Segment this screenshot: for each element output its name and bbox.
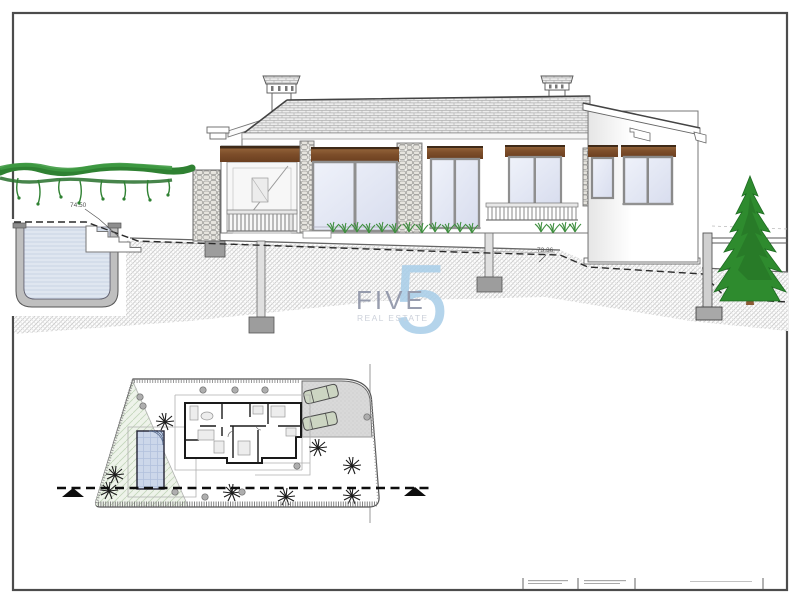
small-window	[592, 158, 613, 198]
conifer-tree-icon	[714, 176, 786, 305]
glass-door	[429, 159, 481, 228]
porch	[227, 162, 297, 233]
garden-wall-stone	[193, 170, 220, 241]
double-window	[622, 157, 674, 204]
window-lintel	[311, 147, 399, 162]
sliding-glass-door	[313, 162, 397, 231]
floor-plan	[185, 403, 301, 463]
level-label-mid: 73.36	[537, 247, 554, 254]
right-wing	[583, 103, 706, 262]
tiled-roof	[244, 96, 590, 133]
architectural-drawing: 74.50 73.36 73.29	[0, 0, 799, 603]
house-elevation	[207, 76, 706, 262]
logo-tagline: REAL ESTATE	[357, 313, 428, 323]
vine-plant-icon	[0, 165, 192, 206]
site-plan	[57, 364, 432, 523]
blueprint-canvas: 74.50 73.36 73.29	[0, 0, 799, 603]
pool-plan	[137, 431, 164, 489]
section-marker-icon	[62, 488, 84, 497]
logo-word: FIVE	[356, 285, 426, 315]
title-strip	[523, 578, 763, 589]
stone-pillar	[397, 143, 422, 233]
